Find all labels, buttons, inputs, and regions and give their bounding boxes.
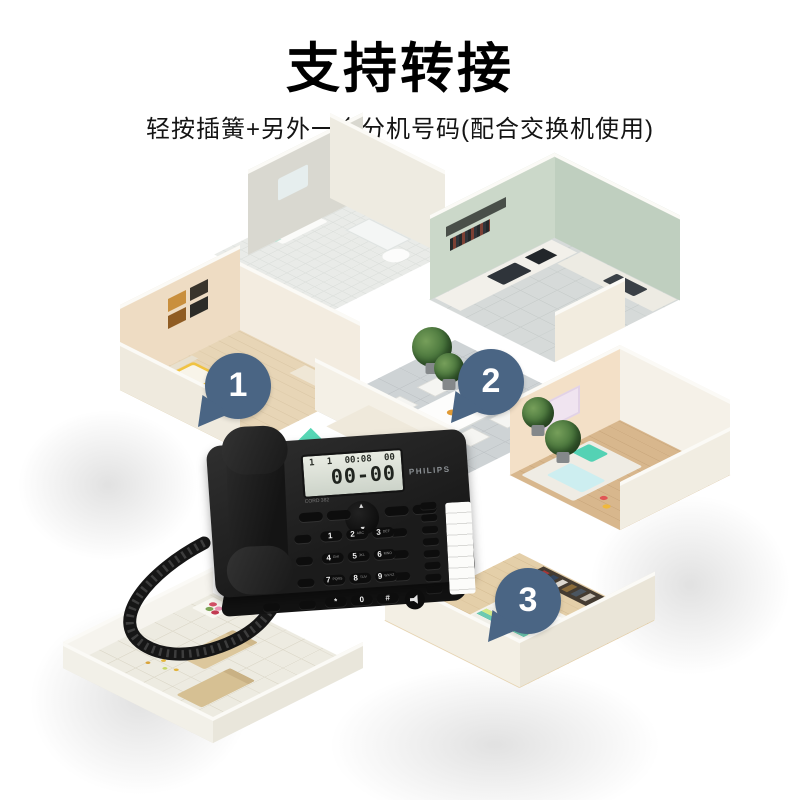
- keypad-key-8: 8TUV: [349, 572, 372, 584]
- function-key: [296, 556, 314, 565]
- pin-number: 2: [458, 349, 524, 415]
- function-key: [263, 603, 281, 612]
- pin-number: 3: [495, 568, 561, 634]
- location-pin-2: 2: [458, 349, 524, 415]
- keypad-key-6: 6MNO: [373, 549, 396, 561]
- memory-key: [421, 514, 437, 522]
- location-pin-1: 1: [205, 353, 271, 419]
- page-title: 支持转接: [0, 0, 800, 99]
- pin-number: 1: [205, 353, 271, 419]
- keypad-key-7: 7PQRS: [323, 574, 346, 586]
- memory-key: [422, 526, 438, 534]
- function-key: [327, 510, 352, 521]
- page-subtitle: 轻按插簧+另外一个分机号码(配合交换机使用): [0, 109, 800, 144]
- keypad-key-4: 4GHI: [321, 552, 344, 564]
- product-banner: 支持转接 轻按插簧+另外一个分机号码(配合交换机使用): [0, 0, 800, 800]
- function-key: [299, 600, 317, 609]
- memory-key: [420, 502, 436, 510]
- keypad-key-star: *: [325, 596, 348, 608]
- handset: [225, 427, 290, 593]
- memory-key: [423, 538, 439, 546]
- function-key: [297, 578, 315, 587]
- keypad-key-9: 9WXYZ: [375, 571, 398, 583]
- keypad-key-2: 2ABC: [346, 529, 369, 541]
- keypad-key-0: 0: [350, 594, 373, 606]
- location-pin-3: 3: [495, 568, 561, 634]
- keypad-key-1: 1: [320, 530, 343, 542]
- philips-corded-phone: 1 1 00:08 00 00-00 PHILIPS CORD 382 ▲ ▼: [152, 403, 513, 661]
- speaker-key: [404, 589, 425, 610]
- memory-key: [426, 585, 442, 593]
- memory-index-card: [445, 501, 476, 594]
- function-key: [384, 506, 409, 517]
- memory-key: [424, 562, 440, 570]
- memory-key: [425, 574, 441, 582]
- lcd-count-a: 1: [309, 458, 315, 468]
- keypad-key-hash: #: [376, 593, 399, 605]
- function-key: [299, 512, 324, 523]
- nav-up-icon: ▲: [344, 502, 378, 511]
- keypad-key-5: 5JKL: [347, 550, 370, 562]
- apartment-illustration: 1 2 3 1 1 00:08 00 00-00: [0, 175, 800, 800]
- lcd-display: 1 1 00:08 00 00-00: [301, 448, 406, 499]
- keypad-key-3: 3DEF: [372, 527, 395, 539]
- function-key: [294, 534, 312, 543]
- memory-key: [423, 550, 439, 558]
- header: 支持转接 轻按插簧+另外一个分机号码(配合交换机使用): [0, 0, 800, 144]
